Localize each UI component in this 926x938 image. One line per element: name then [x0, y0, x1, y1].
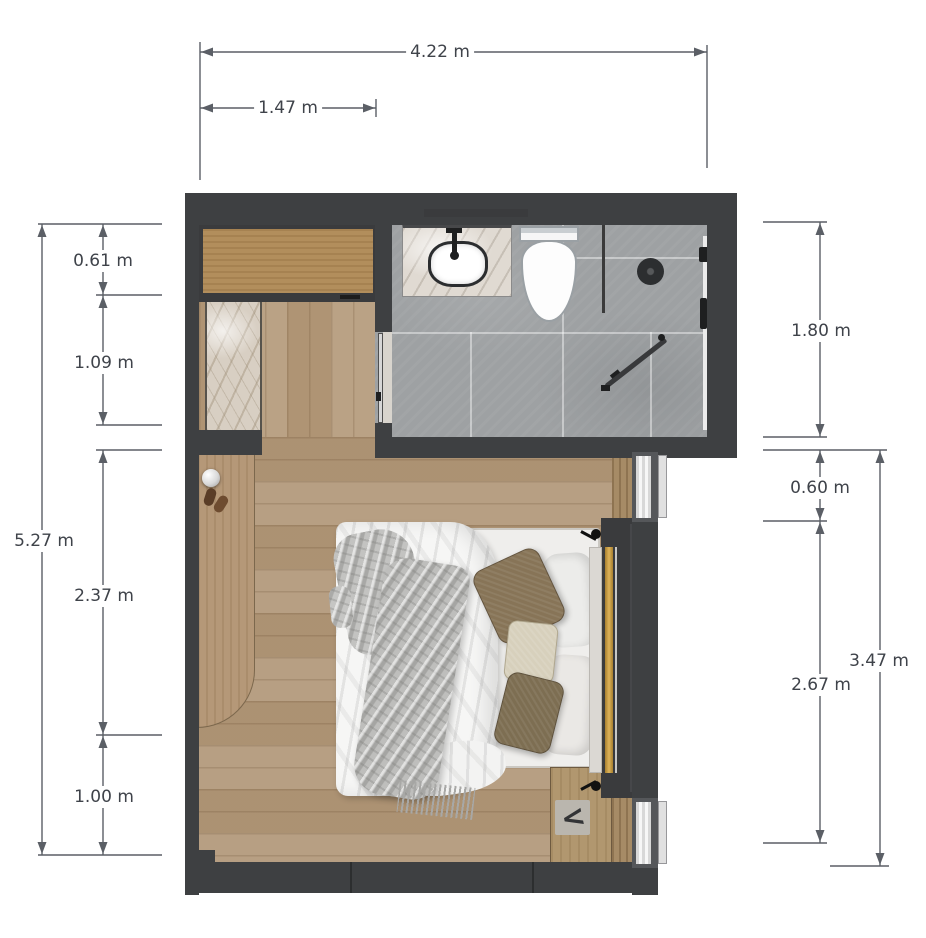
dim-bathroom-depth: 1.80 m: [787, 320, 855, 342]
window-glass-line: [645, 456, 648, 518]
wall-seam: [350, 862, 352, 893]
faucet-icon: [450, 251, 459, 260]
rain-shower-head-icon: [637, 258, 664, 285]
window-glass-line: [639, 456, 642, 518]
dim-closet-depth: 1.09 m: [70, 352, 138, 374]
shower-door-bracket: [601, 385, 610, 391]
dim-width-total: 4.22 m: [406, 41, 474, 63]
window-glass-line: [639, 802, 642, 864]
window-top: [632, 452, 658, 522]
mirror: [424, 209, 528, 217]
shower-partition: [602, 225, 605, 313]
wall-bathroom-left-upper: [375, 225, 392, 332]
window-bottom: [632, 798, 658, 868]
bathroom-door: [378, 333, 383, 423]
shower-control-icon: [700, 298, 707, 329]
dim-window-width: 0.60 m: [786, 477, 854, 499]
dim-bottom-zone: 1.00 m: [70, 786, 138, 808]
floor-plan: < 4.22 m 1.47 m 0.61 m 1.: [0, 0, 926, 938]
throw-blanket-edge: [328, 585, 354, 629]
marble-dresser: [205, 296, 262, 432]
reading-lamp-top-icon: [591, 529, 601, 539]
dim-wall-lower: 2.67 m: [787, 674, 855, 696]
dim-wardrobe-depth: 0.61 m: [69, 250, 137, 272]
shower-door-knob: [658, 334, 665, 341]
wall-corner-step: [199, 850, 215, 868]
bathroom-door-threshold: [383, 332, 392, 424]
wall-closet-stub: [185, 430, 262, 455]
reading-lamp-bottom-icon: [591, 781, 601, 791]
window-glass-line: [645, 802, 648, 864]
window-sill: [658, 455, 667, 518]
headboard-glass-line: [615, 547, 617, 773]
wall-bathroom-left-lower: [375, 423, 392, 458]
headboard: [589, 547, 602, 773]
tile-joint: [392, 332, 705, 334]
wall-left: [185, 193, 199, 895]
tile-joint: [562, 257, 705, 259]
decor-sphere: [202, 469, 220, 487]
wall-seam: [532, 862, 534, 893]
wardrobe-handle: [340, 295, 360, 299]
tile-joint: [470, 332, 472, 437]
wardrobe: [199, 225, 377, 295]
dim-room-height: 5.27 m: [10, 530, 78, 552]
dim-width-closet: 1.47 m: [254, 97, 322, 119]
bathroom-door-handle: [376, 392, 381, 401]
wall-bathroom-bottom: [375, 437, 737, 458]
dim-bed-zone: 2.37 m: [70, 585, 138, 607]
headboard-gold-trim: [605, 547, 613, 773]
wall-bottom: [185, 862, 658, 893]
dim-wall-total: 3.47 m: [845, 650, 913, 672]
wall-bathroom-right: [707, 193, 737, 458]
window-sill: [658, 801, 667, 864]
sink: [428, 241, 488, 287]
window-floor-strip: [612, 795, 632, 862]
